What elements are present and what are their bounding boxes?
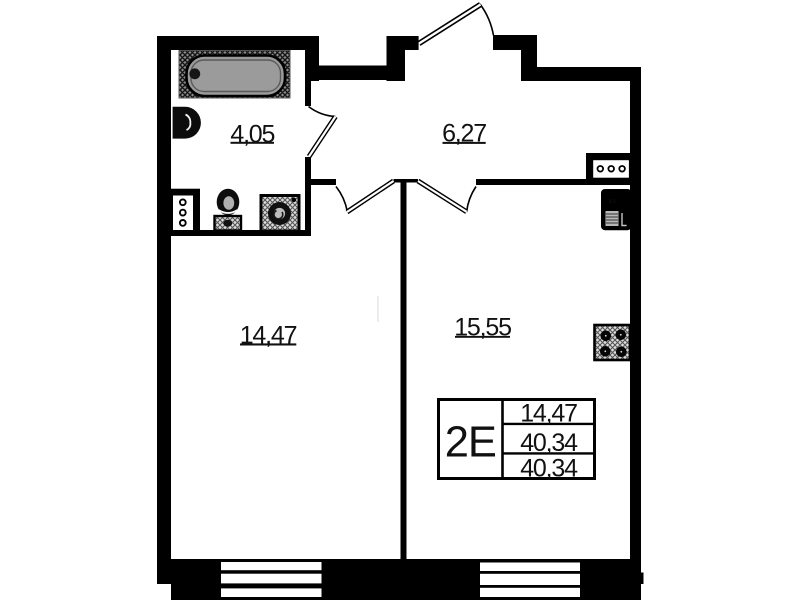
svg-text:14,47: 14,47 [520,399,577,427]
svg-text:40,34: 40,34 [520,455,578,483]
svg-text:40,34: 40,34 [520,429,578,457]
svg-text:4.0: 4.0 [609,199,617,205]
svg-text:2Е: 2Е [445,419,496,467]
svg-text:4,05: 4,05 [230,121,274,149]
